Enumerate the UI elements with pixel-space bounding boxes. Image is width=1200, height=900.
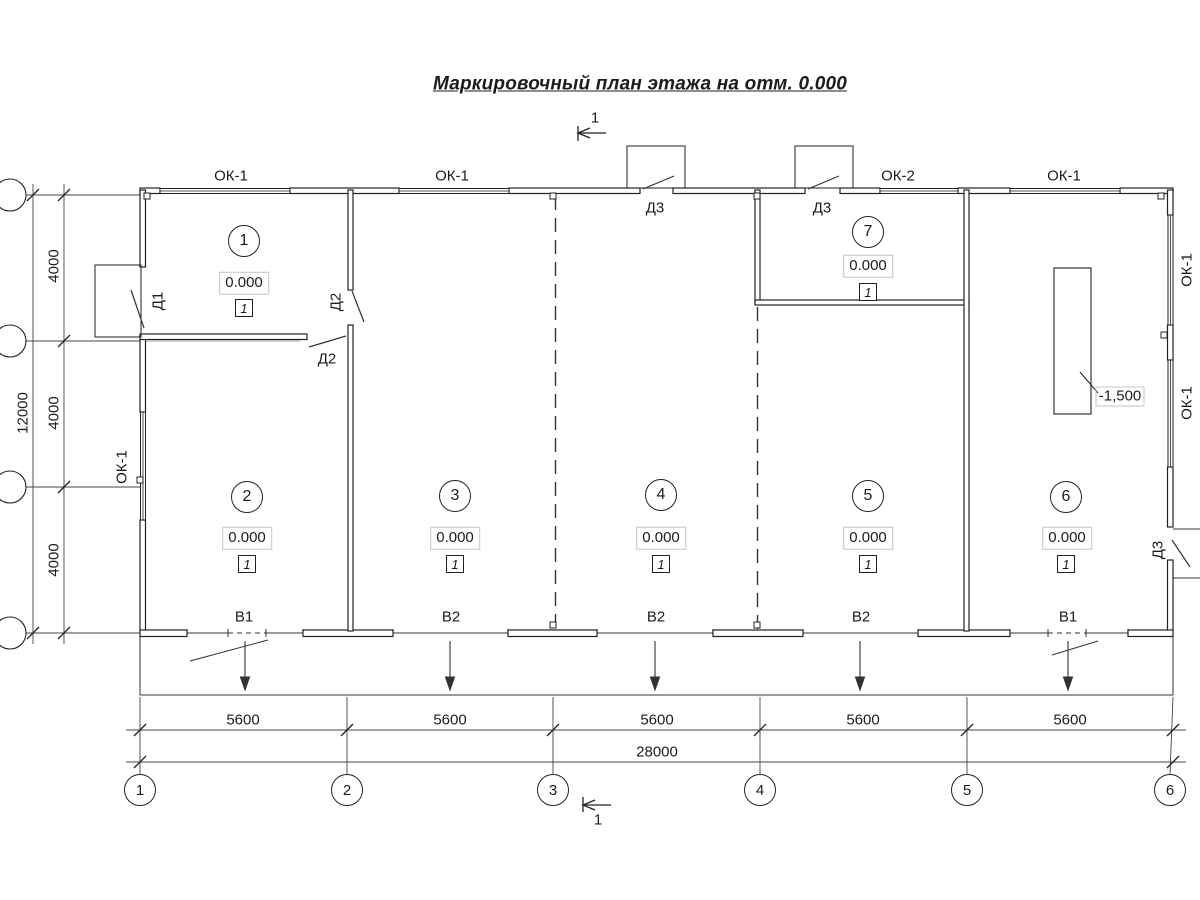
room-3-finish: 1 <box>446 555 464 573</box>
dim-left-3: 4000 <box>47 543 62 576</box>
room-7-elevation: 0.000 <box>843 255 893 278</box>
gate-arrows <box>241 641 1073 690</box>
dim-bay-1: 5600 <box>226 713 259 728</box>
room-5-number: 5 <box>852 480 884 512</box>
dim-total-height: 12000 <box>16 392 31 434</box>
window-label-ok1-right-1: ОК-1 <box>1180 253 1195 287</box>
window-label-ok2-top: ОК-2 <box>881 169 915 184</box>
dim-left-2: 4000 <box>47 396 62 429</box>
section-marks <box>578 126 611 812</box>
gate-label-v2-3: В2 <box>852 610 870 625</box>
axis-bubble-1: 1 <box>124 774 156 806</box>
section-mark-top-label: 1 <box>591 111 599 126</box>
room-6-elevation: 0.000 <box>1042 527 1092 550</box>
door-label-d1: Д1 <box>151 292 166 311</box>
gate-label-v2-2: В2 <box>647 610 665 625</box>
room-7-finish: 1 <box>859 283 877 301</box>
drawing-title: Маркировочный план этажа на отм. 0.000 <box>433 75 847 94</box>
loading-platform <box>140 529 1200 695</box>
axis-bubble-6: 6 <box>1154 774 1186 806</box>
room-4-finish: 1 <box>652 555 670 573</box>
axis-bubble-2: 2 <box>331 774 363 806</box>
door-label-d3-top-left: Д3 <box>646 201 665 216</box>
dimension-ticks <box>27 189 1179 768</box>
dim-bay-2: 5600 <box>433 713 466 728</box>
dim-bay-4: 5600 <box>846 713 879 728</box>
door-label-d3-right: Д3 <box>1151 541 1166 560</box>
window-label-ok1-top-1: ОК-1 <box>214 169 248 184</box>
room-2-finish: 1 <box>238 555 256 573</box>
section-mark-bottom-label: 1 <box>594 813 602 828</box>
dim-bay-3: 5600 <box>640 713 673 728</box>
floor-plan-sheet: Маркировочный план этажа на отм. 0.000 1… <box>0 0 1200 900</box>
window-label-ok1-top-2: ОК-1 <box>435 169 469 184</box>
gate-label-v1-1: В1 <box>235 610 253 625</box>
room-4-elevation: 0.000 <box>636 527 686 550</box>
gate-label-v1-2: В1 <box>1059 610 1077 625</box>
door-label-d3-top-right: Д3 <box>813 201 832 216</box>
room-6-finish: 1 <box>1057 555 1075 573</box>
door-label-d2-horizontal: Д2 <box>318 352 337 367</box>
floor-plan-drawing <box>0 0 1200 900</box>
window-label-ok1-left: ОК-1 <box>115 450 130 484</box>
room-1-finish: 1 <box>235 299 253 317</box>
entrance-porches <box>95 146 853 337</box>
dim-total-width: 28000 <box>636 745 678 760</box>
dim-bay-5: 5600 <box>1053 713 1086 728</box>
room-2-elevation: 0.000 <box>222 527 272 550</box>
windows-layer <box>141 189 1174 521</box>
room-5-elevation: 0.000 <box>843 527 893 550</box>
room-7-number: 7 <box>852 216 884 248</box>
room-5-finish: 1 <box>859 555 877 573</box>
room-3-number: 3 <box>439 480 471 512</box>
room-2-number: 2 <box>231 481 263 513</box>
room-1-number: 1 <box>228 225 260 257</box>
room-1-elevation: 0.000 <box>219 272 269 295</box>
dim-left-1: 4000 <box>47 249 62 282</box>
window-label-ok1-top-3: ОК-1 <box>1047 169 1081 184</box>
window-label-ok1-right-2: ОК-1 <box>1180 386 1195 420</box>
gate-label-v2-1: В2 <box>442 610 460 625</box>
dimension-lines-layer <box>26 184 1186 774</box>
axis-bubble-5: 5 <box>951 774 983 806</box>
room-6-number: 6 <box>1050 481 1082 513</box>
door-label-d2-vertical: Д2 <box>329 293 344 312</box>
room-4-number: 4 <box>645 479 677 511</box>
pit-elevation-label: -1,500 <box>1099 389 1142 404</box>
room-3-elevation: 0.000 <box>430 527 480 550</box>
axis-bubble-4: 4 <box>744 774 776 806</box>
axis-bubble-3: 3 <box>537 774 569 806</box>
